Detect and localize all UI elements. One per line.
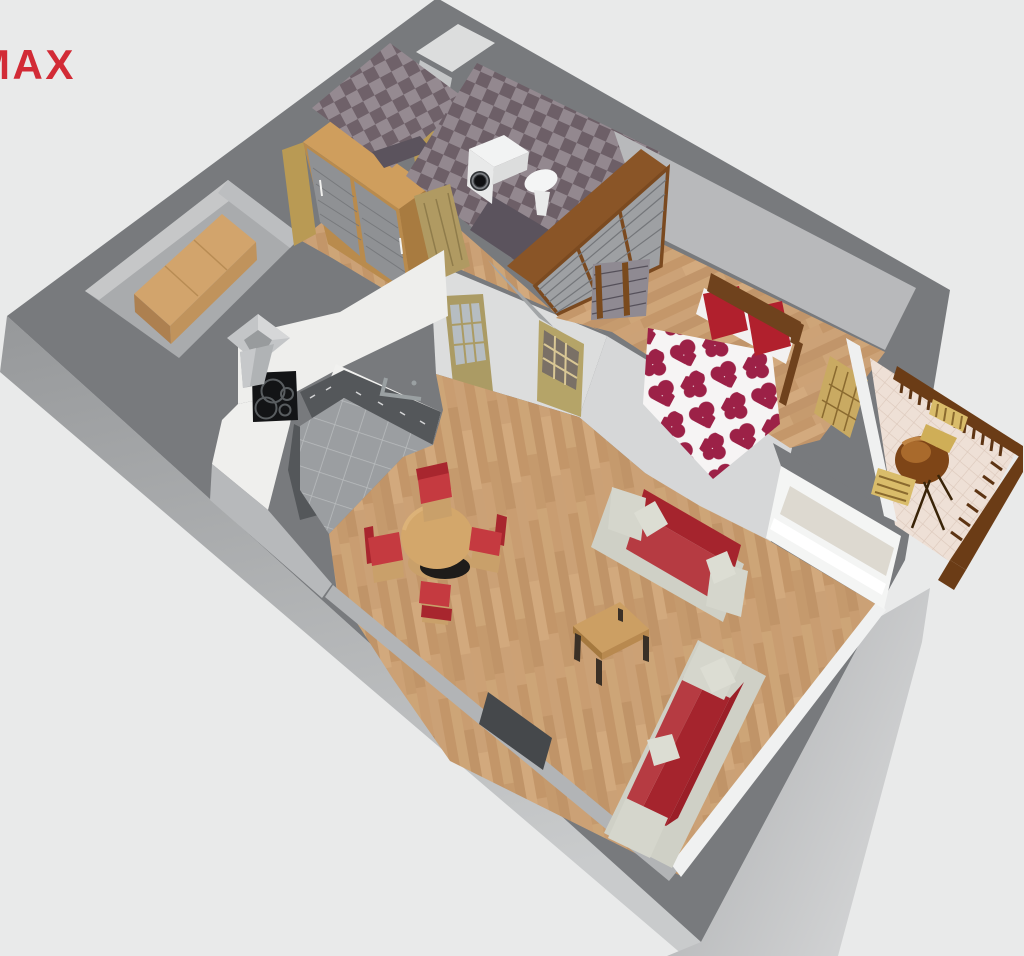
svg-text:MAX: MAX bbox=[0, 41, 76, 88]
